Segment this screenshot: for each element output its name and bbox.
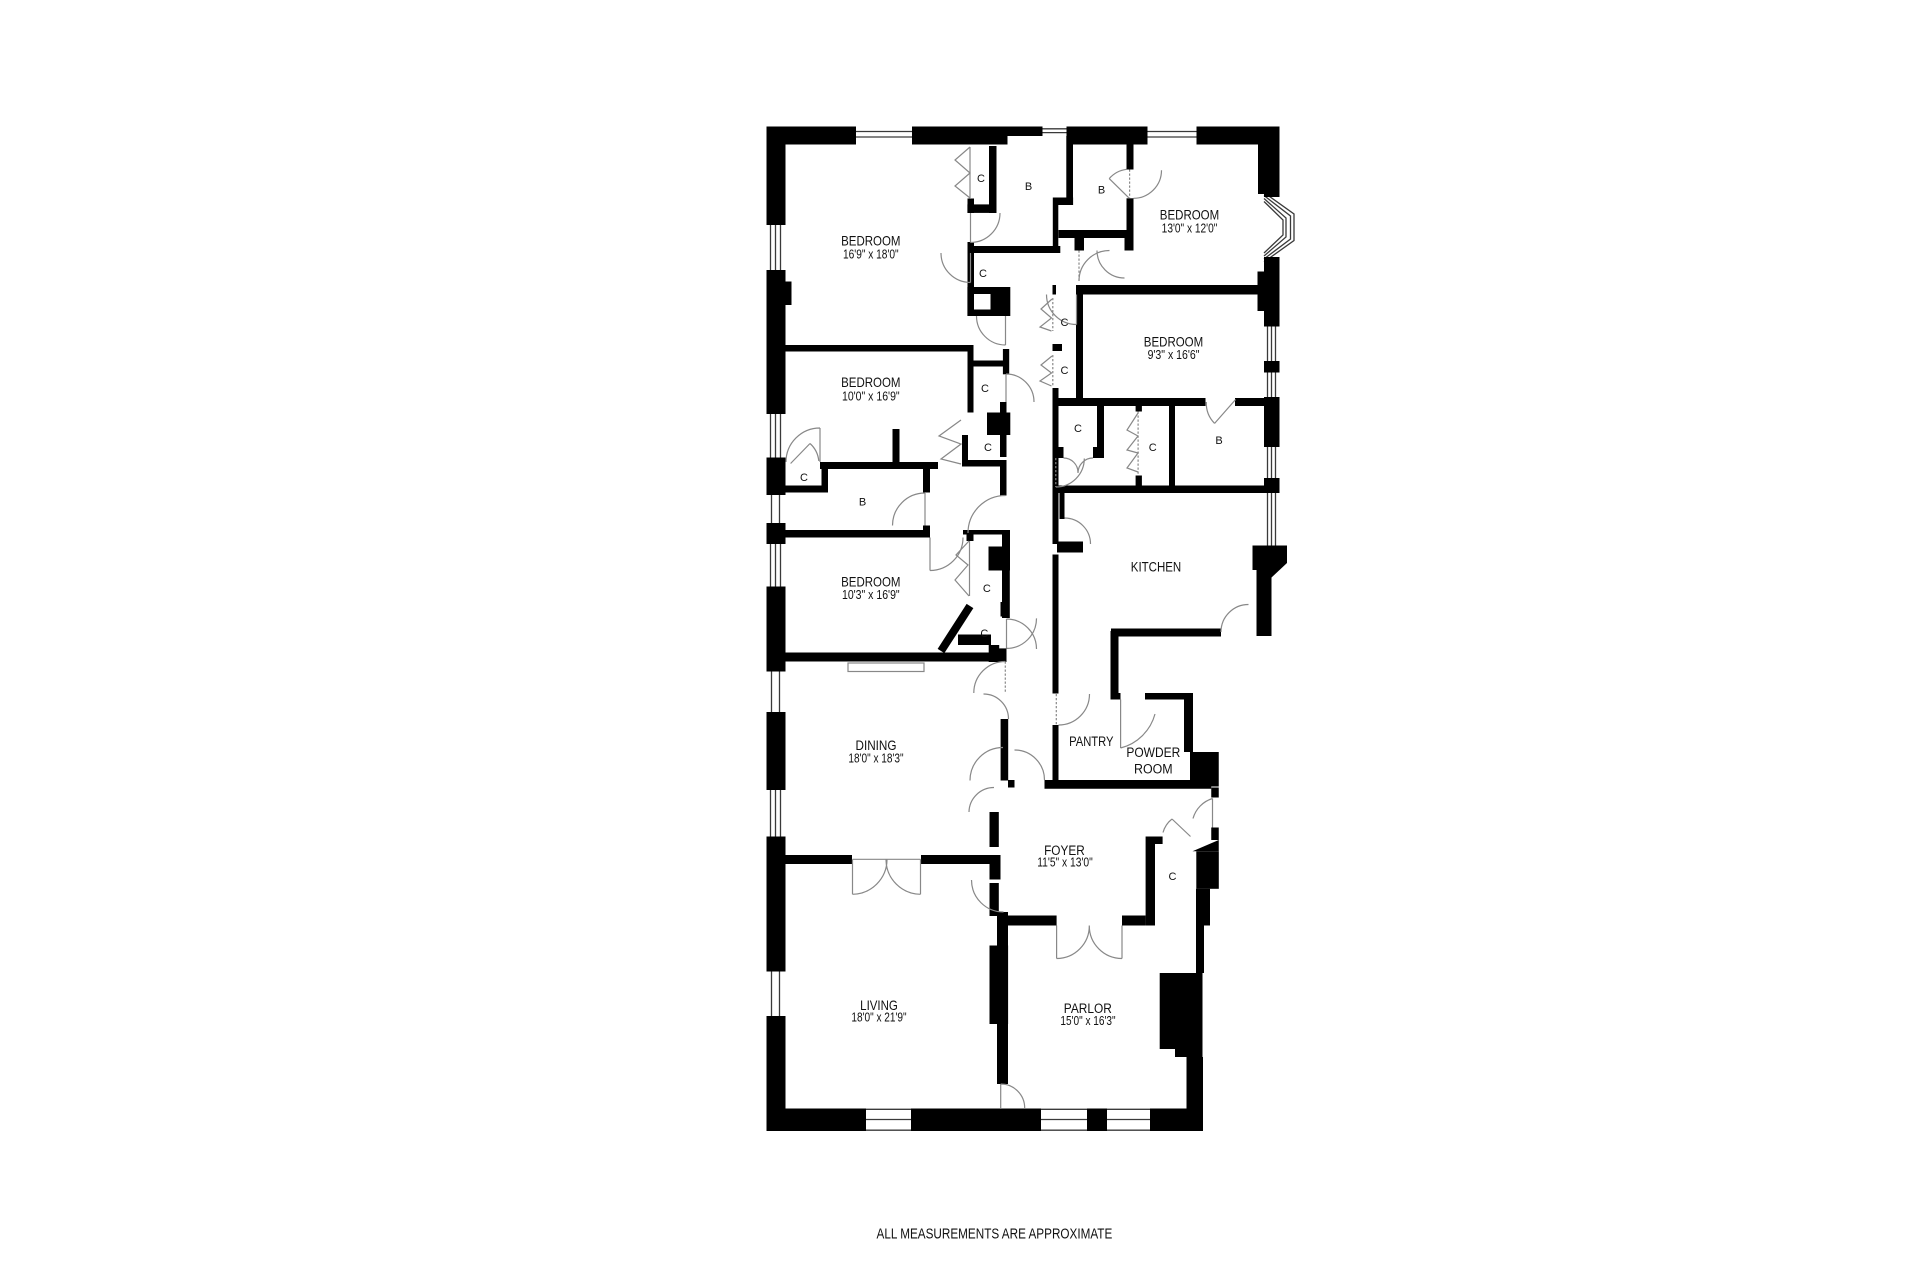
svg-text:18'0" x 21'9": 18'0" x 21'9" (851, 1012, 906, 1025)
svg-text:B: B (1215, 435, 1222, 447)
svg-text:BEDROOM: BEDROOM (841, 374, 900, 390)
svg-text:C: C (983, 583, 991, 595)
svg-text:B: B (1025, 181, 1032, 193)
svg-text:ALL MEASUREMENTS ARE APPROXIMA: ALL MEASUREMENTS ARE APPROXIMATE (877, 1225, 1113, 1242)
svg-text:11'5" x 13'0": 11'5" x 13'0" (1037, 857, 1093, 870)
svg-text:C: C (1061, 317, 1069, 329)
svg-text:C: C (980, 628, 988, 640)
svg-text:C: C (1074, 423, 1082, 435)
svg-text:BEDROOM: BEDROOM (841, 232, 900, 248)
svg-text:C: C (1149, 442, 1157, 454)
svg-text:C: C (1061, 365, 1069, 377)
svg-text:C: C (977, 173, 985, 185)
svg-text:10'3" x 16'9": 10'3" x 16'9" (842, 589, 900, 602)
svg-text:PANTRY: PANTRY (1069, 734, 1114, 749)
svg-text:BEDROOM: BEDROOM (1160, 206, 1219, 222)
svg-text:18'0" x 18'3": 18'0" x 18'3" (848, 753, 903, 766)
svg-text:PARLOR: PARLOR (1064, 1000, 1112, 1016)
svg-text:C: C (981, 383, 989, 395)
svg-text:B: B (1098, 185, 1105, 197)
svg-text:15'0" x 16'3": 15'0" x 16'3" (1060, 1015, 1115, 1028)
svg-text:B: B (859, 497, 866, 509)
svg-text:10'0" x 16'9": 10'0" x 16'9" (842, 391, 900, 404)
svg-text:KITCHEN: KITCHEN (1131, 558, 1181, 574)
svg-text:16'9" x 18'0": 16'9" x 18'0" (843, 249, 899, 262)
svg-text:C: C (800, 472, 808, 484)
svg-text:BEDROOM: BEDROOM (841, 573, 900, 589)
svg-text:13'0" x 12'0": 13'0" x 12'0" (1162, 223, 1218, 236)
svg-text:C: C (979, 268, 987, 280)
svg-text:C: C (1169, 871, 1177, 883)
svg-text:9'3" x 16'6": 9'3" x 16'6" (1148, 349, 1200, 362)
svg-text:ROOM: ROOM (1134, 761, 1173, 777)
svg-text:DINING: DINING (856, 737, 897, 753)
svg-text:POWDER: POWDER (1126, 744, 1180, 760)
svg-text:BEDROOM: BEDROOM (1144, 333, 1203, 349)
svg-text:C: C (984, 442, 992, 454)
